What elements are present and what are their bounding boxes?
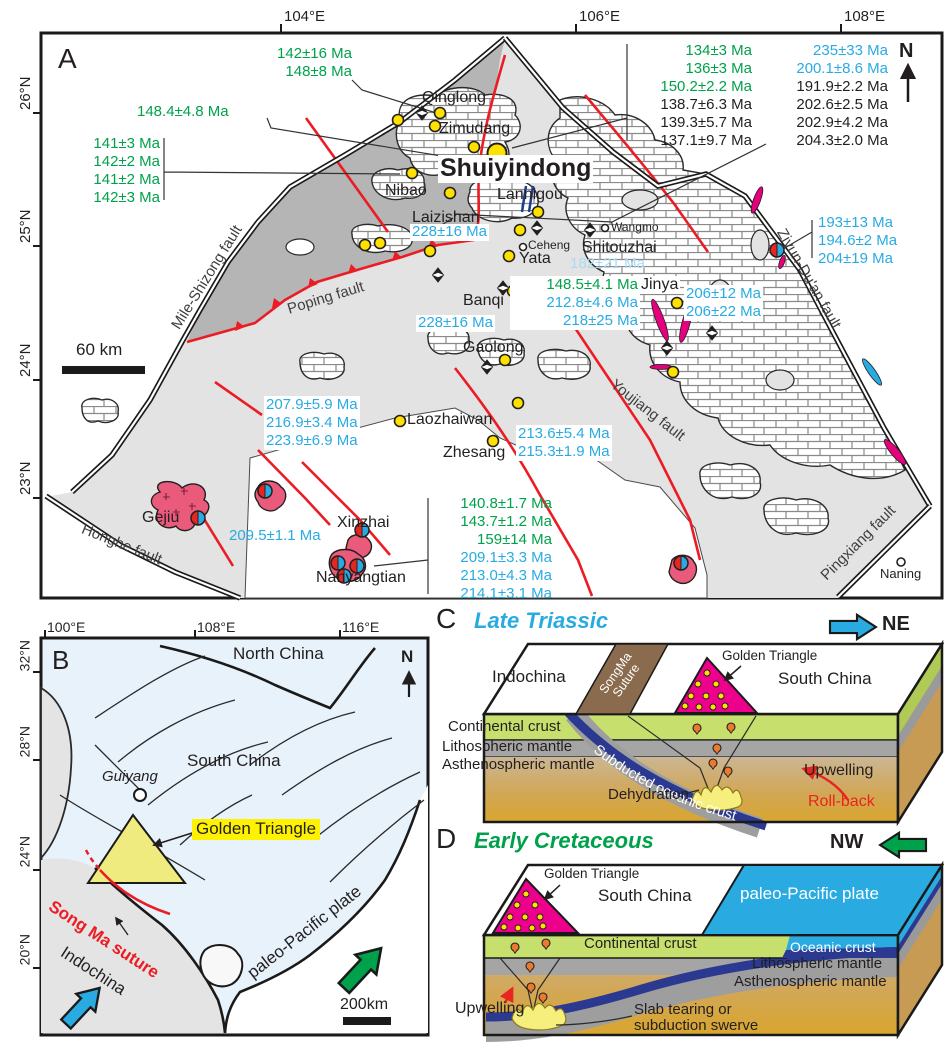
age-value: 194.6±2 Ma xyxy=(818,232,897,250)
age-value: 150.2±2.2 Ma xyxy=(628,78,752,96)
nw-arrow-icon xyxy=(880,833,926,857)
place-label-yata: Yata xyxy=(519,250,551,268)
layer-label-asthenospheric-mantle-d: Asthenospheric mantle xyxy=(734,974,887,991)
block-label-paleo-pacific-d: paleo-Pacific plate xyxy=(740,885,879,904)
age-value: 228±16 Ma xyxy=(416,315,495,332)
age-value: 139.3±5.7 Ma xyxy=(628,114,752,132)
block-label-south-china-c: South China xyxy=(778,670,872,689)
axis-label-26n: 26°N xyxy=(18,71,35,115)
place-label-jinya: Jinya xyxy=(639,276,680,294)
north-label-a: N xyxy=(899,40,913,62)
place-label-xinzhai: Xinzhai xyxy=(337,514,389,532)
layer-label-lithospheric-mantle-d: Lithospheric mantle xyxy=(752,956,882,973)
age-value: 136±3 Ma xyxy=(628,60,752,78)
guiyang-marker xyxy=(134,789,146,801)
axis-label-24n-b: 24°N xyxy=(17,830,32,874)
axis-label-100e: 100°E xyxy=(47,620,85,635)
age-value: 215.3±1.9 Ma xyxy=(518,443,610,461)
age-value: 159±14 Ma xyxy=(430,531,552,549)
panel-c-label: C xyxy=(436,604,456,635)
layer-label-oceanic-crust: Oceanic crust xyxy=(790,940,876,955)
label-dehydration: Dehydration xyxy=(608,787,689,804)
age-value: 148±8 Ma xyxy=(246,63,352,81)
age-group-ziyun: 193±13 Ma 194.6±2 Ma 204±19 Ma xyxy=(818,214,897,268)
place-label-zimudang: Zimudang xyxy=(439,120,510,138)
region-label-north-china: North China xyxy=(233,645,324,664)
age-value: 209.5±1.1 Ma xyxy=(229,528,321,545)
place-label-gejiu: Gejiu xyxy=(142,509,179,527)
direction-label-ne: NE xyxy=(882,613,910,635)
panel-b-label: B xyxy=(52,646,69,675)
label-upwelling-d: Upwelling xyxy=(455,1000,524,1018)
label-rollback: Roll-back xyxy=(808,793,875,811)
age-value: 212.8±4.6 Ma xyxy=(512,294,638,312)
age-value: 207.9±5.9 Ma xyxy=(266,396,358,414)
place-label-banqi: Banqi xyxy=(463,292,504,310)
axis-label-32n: 32°N xyxy=(17,634,32,678)
age-value: 213.6±5.4 Ma xyxy=(518,425,610,443)
age-value: 204.3±2.0 Ma xyxy=(764,132,888,150)
age-group-ne-col2: 235±33 Ma 200.1±8.6 Ma 191.9±2.2 Ma 202.… xyxy=(764,42,888,150)
age-value: 143.7±1.2 Ma xyxy=(430,513,552,531)
age-value: 142±3 Ma xyxy=(68,189,160,207)
age-value: 182±21 Ma xyxy=(570,256,645,273)
age-group-south: 140.8±1.7 Ma 143.7±1.2 Ma 159±14 Ma 209.… xyxy=(430,495,552,603)
age-value: 141±3 Ma xyxy=(68,135,160,153)
age-value: 138.7±6.3 Ma xyxy=(628,96,752,114)
golden-triangle-label-d: Golden Triangle xyxy=(544,867,639,882)
axis-label-23n: 23°N xyxy=(18,456,35,500)
place-label-wangmo: Wangmo xyxy=(611,221,659,234)
place-label-laizishan: Laizishan xyxy=(412,209,480,227)
age-value: 142±2 Ma xyxy=(68,153,160,171)
north-label-b: N xyxy=(401,648,413,667)
scale-bar-b xyxy=(343,1017,391,1025)
age-group-sw: 207.9±5.9 Ma 216.9±3.4 Ma 223.9±6.9 Ma xyxy=(264,396,360,450)
panel-d-title: Early Cretaceous xyxy=(474,829,654,853)
age-value: 137.1±9.7 Ma xyxy=(628,132,752,150)
age-value: 213.0±4.3 Ma xyxy=(430,567,552,585)
age-group-banqi: 148.5±4.1 Ma 212.8±4.6 Ma 218±25 Ma xyxy=(510,276,640,330)
age-value: 134±3 Ma xyxy=(628,42,752,60)
axis-label-108e-b: 108°E xyxy=(197,620,235,635)
place-label-zhesang: Zhesang xyxy=(443,444,505,462)
axis-label-28n: 28°N xyxy=(17,720,32,764)
axis-label-24n: 24°N xyxy=(18,338,35,382)
ne-arrow-icon xyxy=(830,615,876,639)
block-label-indochina-c: Indochina xyxy=(492,668,566,687)
layer-label-lithospheric-mantle-c: Lithospheric mantle xyxy=(442,739,572,756)
city-label-guiyang: Guiyang xyxy=(102,769,158,786)
scale-bar-a xyxy=(62,366,145,374)
age-group-nw: 142±16 Ma 148±8 Ma xyxy=(246,45,352,81)
panel-a-label: A xyxy=(58,44,77,75)
scale-label-b: 200km xyxy=(340,996,388,1014)
age-value: 206±22 Ma xyxy=(686,303,761,321)
panel-c-title: Late Triassic xyxy=(474,609,608,633)
age-value: 206±12 Ma xyxy=(686,285,761,303)
axis-label-20n: 20°N xyxy=(17,928,32,972)
hainan-island xyxy=(200,945,242,986)
age-group-zhesang: 213.6±5.4 Ma 215.3±1.9 Ma xyxy=(516,425,612,461)
age-group-west: 141±3 Ma 142±2 Ma 141±2 Ma 142±3 Ma xyxy=(68,135,160,207)
place-label-nibao: Nibao xyxy=(385,182,427,200)
place-label-laozhaiwan: Laozhaiwan xyxy=(407,411,492,429)
label-slab-tearing-2: subduction swerve xyxy=(634,1018,758,1035)
block-label-south-china-d: South China xyxy=(598,887,692,906)
age-group-ne-col1: 134±3 Ma 136±3 Ma 150.2±2.2 Ma 138.7±6.3… xyxy=(628,42,752,150)
axis-label-25n: 25°N xyxy=(18,204,35,248)
age-value: 218±25 Ma xyxy=(512,312,638,330)
age-value: 148.5±4.1 Ma xyxy=(512,276,638,294)
age-value: 202.9±4.2 Ma xyxy=(764,114,888,132)
axis-label-108e: 108°E xyxy=(844,9,885,26)
axis-label-104e: 104°E xyxy=(284,9,325,26)
age-value: 209.1±3.3 Ma xyxy=(430,549,552,567)
layer-label-continental-crust-c: Continental crust xyxy=(448,719,561,736)
label-upwelling-c: Upwelling xyxy=(804,762,873,780)
age-group-jinya: 206±12 Ma 206±22 Ma xyxy=(684,285,763,321)
age-value: 204±19 Ma xyxy=(818,250,897,268)
place-label-shuiyindong: Shuiyindong xyxy=(438,155,593,183)
place-label-lannigou: Lannigou xyxy=(497,186,563,204)
scale-label-a: 60 km xyxy=(76,341,122,360)
place-label-nanyangtian: Nanyangtian xyxy=(316,569,406,587)
age-value: 142±16 Ma xyxy=(246,45,352,63)
age-value: 202.6±2.5 Ma xyxy=(764,96,888,114)
region-label-south-china: South China xyxy=(187,752,281,771)
age-value: 235±33 Ma xyxy=(764,42,888,60)
figure-gold-triangle-maps: Subducted oceanic crust xyxy=(0,0,951,1050)
age-value: 193±13 Ma xyxy=(818,214,897,232)
place-label-gaolong: Gaolong xyxy=(463,339,524,357)
age-value: 200.1±8.6 Ma xyxy=(764,60,888,78)
layer-label-continental-crust-d: Continental crust xyxy=(584,936,697,953)
place-label-qinglong: Qinglong xyxy=(422,89,486,107)
panel-d-label: D xyxy=(436,824,456,855)
golden-triangle-label-c: Golden Triangle xyxy=(722,649,817,664)
layer-label-asthenospheric-mantle-c: Asthenospheric mantle xyxy=(442,757,595,774)
age-value: 223.9±6.9 Ma xyxy=(266,432,358,450)
age-value: 214.1±3.1 Ma xyxy=(430,585,552,603)
direction-label-nw: NW xyxy=(830,831,863,853)
age-value: 191.9±2.2 Ma xyxy=(764,78,888,96)
golden-triangle-label-b: Golden Triangle xyxy=(192,819,320,840)
age-value: 140.8±1.7 Ma xyxy=(430,495,552,513)
place-label-naning: Naning xyxy=(880,567,921,581)
age-value: 148.4±4.8 Ma xyxy=(137,104,229,121)
place-label-shitouzhai: Shitouzhai xyxy=(582,239,657,257)
axis-label-106e: 106°E xyxy=(579,9,620,26)
age-value: 141±2 Ma xyxy=(68,171,160,189)
axis-label-116e: 116°E xyxy=(342,620,379,635)
age-value: 216.9±3.4 Ma xyxy=(266,414,358,432)
